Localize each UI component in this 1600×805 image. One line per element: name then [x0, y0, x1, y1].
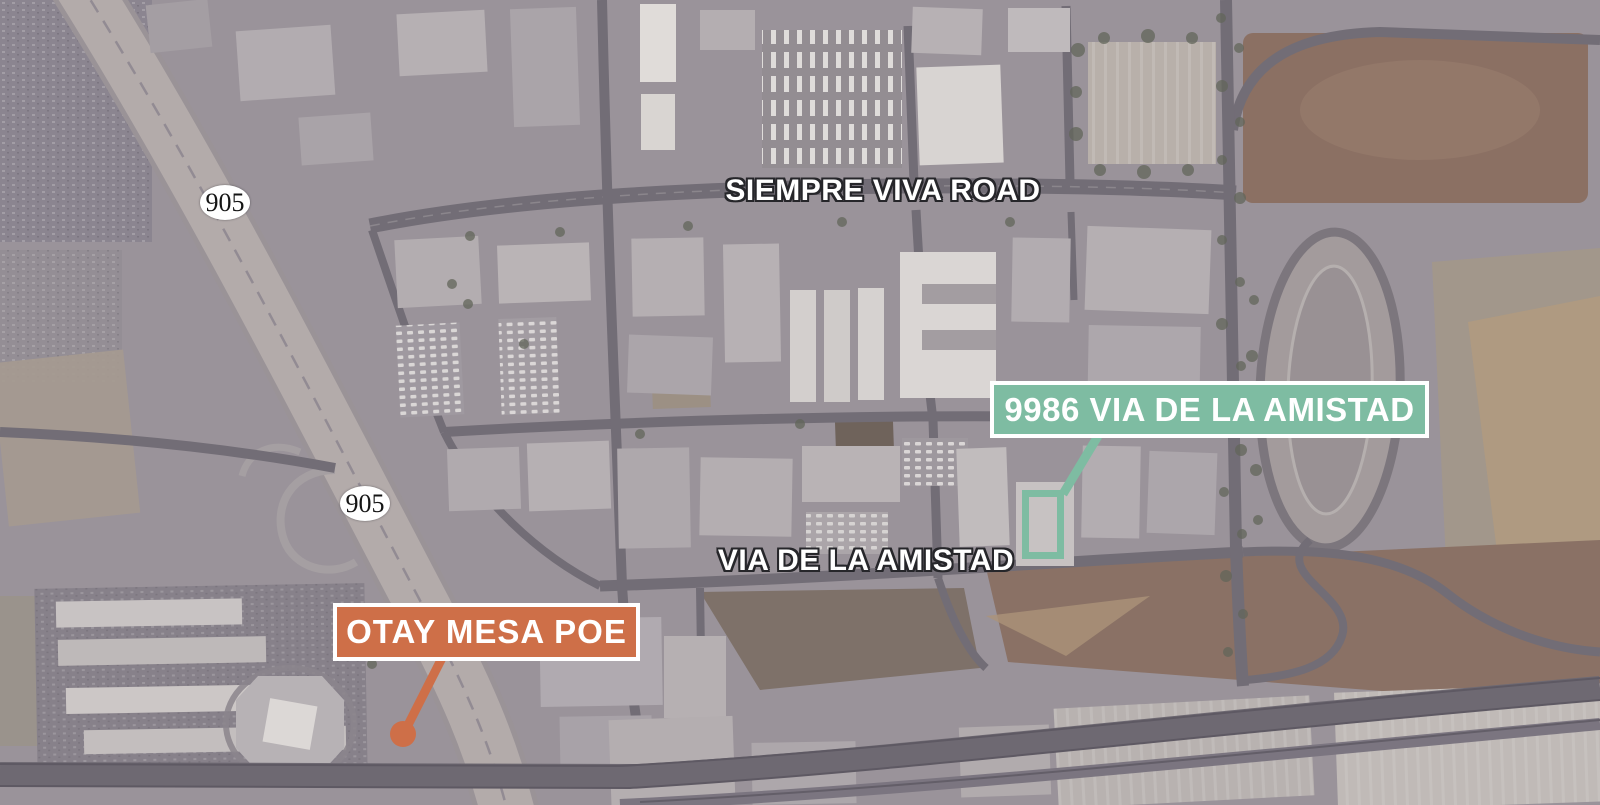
route-shield-number: 905 [206, 189, 245, 216]
street-label-via-de-la-amistad: VIA DE LA AMISTAD [718, 544, 1014, 578]
otay-mesa-poe-text: OTAY MESA POE [346, 613, 627, 651]
route-shield-905-south: 905 [340, 486, 390, 521]
otay-mesa-poe-label: OTAY MESA POE [333, 603, 640, 661]
property-address-label: 9986 VIA DE LA AMISTAD [990, 381, 1429, 438]
route-shield-905-north: 905 [200, 185, 250, 220]
aerial-map: SIEMPRE VIVA ROAD VIA DE LA AMISTAD 905 … [0, 0, 1600, 805]
property-address-text: 9986 VIA DE LA AMISTAD [1004, 391, 1414, 429]
route-shield-number: 905 [346, 490, 385, 517]
street-label-siempre-viva-road: SIEMPRE VIVA ROAD [725, 174, 1040, 208]
